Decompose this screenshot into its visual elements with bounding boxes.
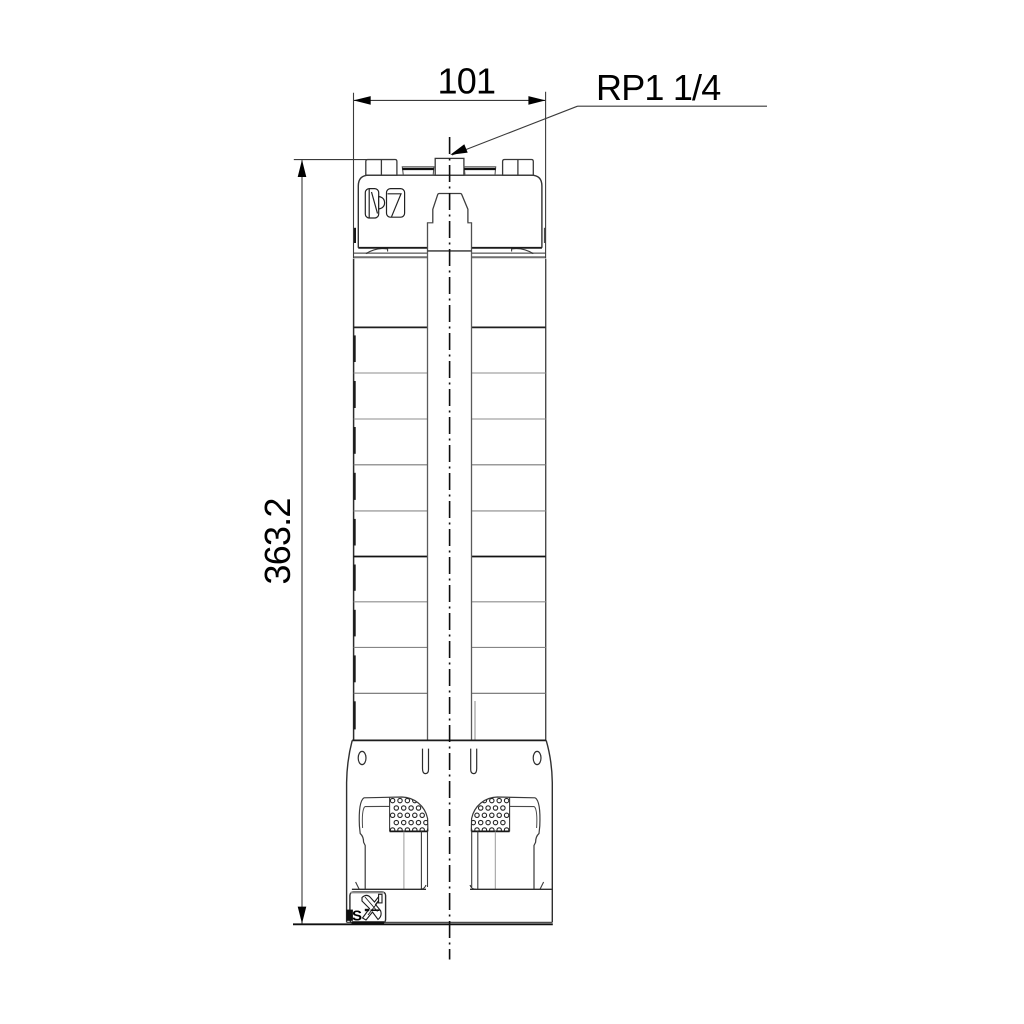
svg-text:363.2: 363.2 bbox=[257, 498, 298, 584]
svg-text:S: S bbox=[352, 908, 362, 925]
svg-text:RP1 1/4: RP1 1/4 bbox=[596, 67, 720, 108]
svg-text:101: 101 bbox=[438, 61, 496, 102]
